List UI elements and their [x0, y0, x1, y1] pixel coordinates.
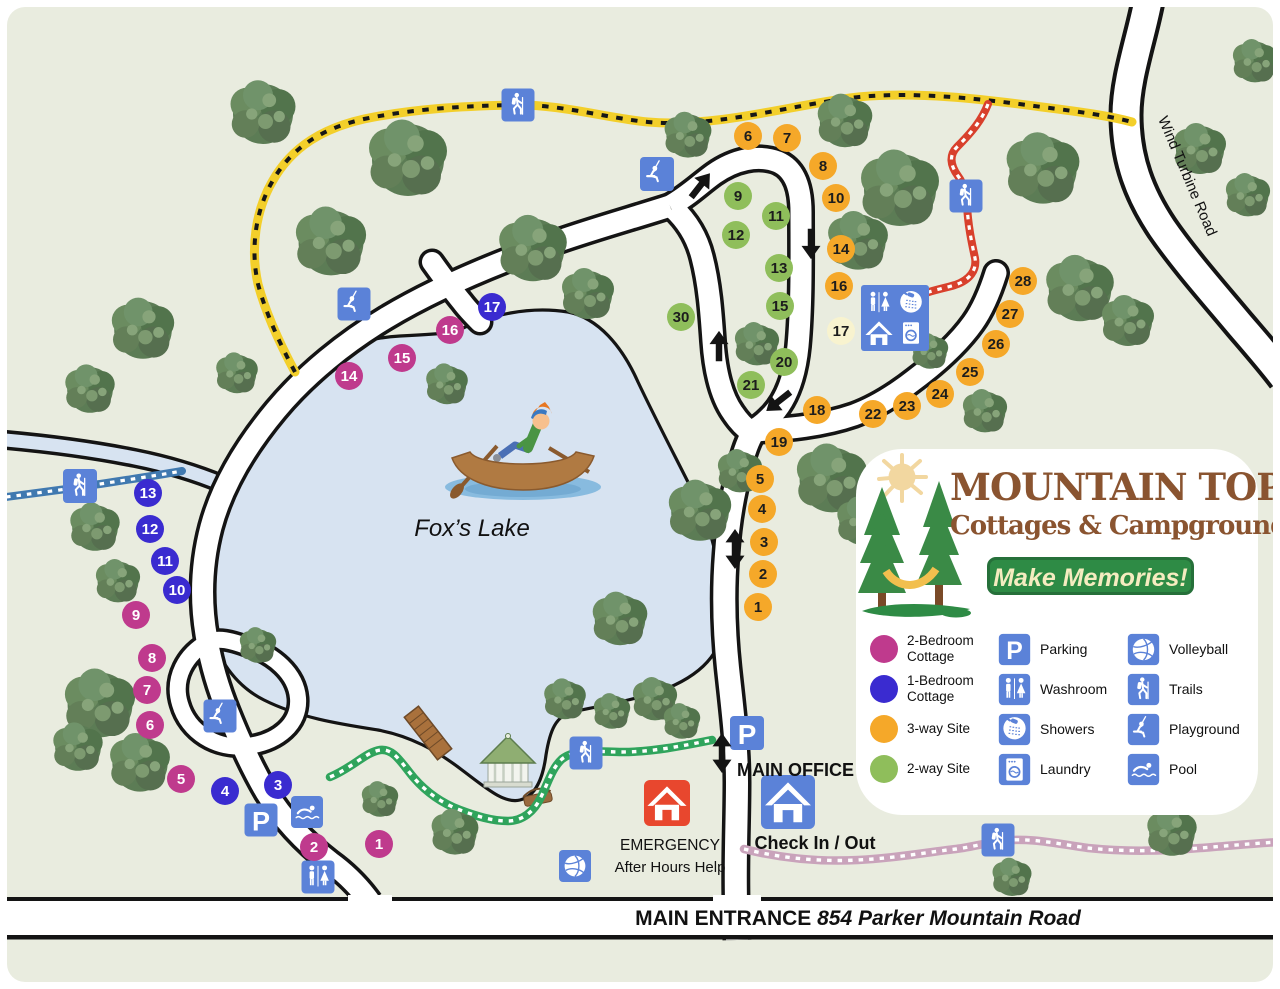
site-marker-site3-19: 19 [765, 428, 793, 456]
check-in-house-icon [761, 775, 815, 829]
legend-item-washroom: Washroom [998, 669, 1107, 709]
svg-text:1: 1 [754, 599, 762, 616]
site-marker-site3-16: 16 [825, 272, 853, 300]
svg-text:1: 1 [375, 836, 383, 853]
site-marker-cottage1-11: 11 [151, 547, 179, 575]
site-marker-cottage2-9: 9 [122, 601, 150, 629]
map-playground-icon [204, 700, 237, 733]
tree-icon [231, 80, 296, 144]
site-marker-cottage2-15: 15 [388, 344, 416, 372]
site-marker-site3-22: 22 [859, 400, 887, 428]
svg-text:7: 7 [143, 682, 151, 699]
tree-icon [96, 559, 140, 602]
svg-text:27: 27 [1002, 306, 1019, 323]
svg-text:P: P [1006, 637, 1023, 664]
site-marker-site3-24: 24 [926, 380, 954, 408]
logo-title: MOUNTAIN TOP [950, 465, 1250, 509]
site-marker-sitePale-17: 17 [827, 317, 855, 345]
tree-icon [818, 94, 873, 148]
washroom-label: Washroom [1040, 681, 1107, 697]
tree-icon [216, 352, 258, 393]
site-marker-site3-14: 14 [827, 235, 855, 263]
tree-icon [65, 364, 114, 412]
tree-icon [1233, 39, 1273, 82]
volleyball-label: Volleyball [1169, 641, 1228, 657]
map-playground-icon [338, 288, 371, 321]
tree-icon [110, 733, 170, 792]
legend-item-site3: 3-way Site [870, 709, 970, 749]
site-marker-site3-18: 18 [803, 396, 831, 424]
cottage1-dot [870, 675, 898, 703]
tree-icon [562, 268, 614, 319]
svg-text:6: 6 [744, 128, 752, 145]
site2-dot [870, 755, 898, 783]
site-marker-cottage2-1: 1 [365, 830, 393, 858]
svg-text:22: 22 [865, 406, 882, 423]
site-marker-site3-26: 26 [982, 330, 1010, 358]
site-marker-cottage2-8: 8 [138, 644, 166, 672]
lake-label: Fox’s Lake [414, 515, 530, 542]
map-trails-icon [950, 180, 983, 213]
svg-text:19: 19 [771, 434, 788, 451]
site3-label: 3-way Site [907, 721, 970, 737]
svg-text:P: P [252, 807, 270, 837]
trails-icon [1127, 673, 1160, 706]
legend-item-site2: 2-way Site [870, 749, 970, 789]
svg-text:30: 30 [673, 309, 690, 326]
map-washroom-icon [302, 861, 335, 894]
legend-item-cottage1: 1-BedroomCottage [870, 669, 974, 709]
legend-item-volleyball: Volleyball [1127, 629, 1228, 669]
svg-text:12: 12 [142, 521, 159, 538]
site-marker-cottage1-10: 10 [163, 576, 191, 604]
site-marker-site2-30: 30 [667, 303, 695, 331]
tree-icon [1102, 295, 1154, 346]
map-parking-icon: P [245, 804, 278, 837]
legend-item-cottage2: 2-BedroomCottage [870, 629, 974, 669]
site-marker-site3-10: 10 [822, 184, 850, 212]
svg-text:20: 20 [776, 354, 793, 371]
tree-icon [499, 215, 567, 281]
site-marker-site3-5: 5 [746, 465, 774, 493]
legend-card: MOUNTAIN TOP Cottages & Campground Make … [856, 449, 1258, 815]
svg-text:3: 3 [274, 777, 282, 794]
svg-text:12: 12 [728, 227, 745, 244]
tree-icon [664, 703, 700, 739]
site3-dot [870, 715, 898, 743]
map-trails-icon [502, 89, 535, 122]
washroom-icon [998, 673, 1031, 706]
svg-text:17: 17 [833, 323, 850, 340]
site-marker-site2-21: 21 [737, 371, 765, 399]
svg-text:13: 13 [771, 260, 788, 277]
svg-text:3: 3 [760, 534, 768, 551]
map-trails-icon [63, 469, 97, 503]
pool-icon [1127, 753, 1160, 786]
svg-text:2: 2 [310, 839, 318, 856]
svg-text:7: 7 [783, 130, 791, 147]
svg-text:21: 21 [743, 377, 760, 394]
parking-label: Parking [1040, 641, 1087, 657]
parking-icon: P [998, 633, 1031, 666]
svg-text:5: 5 [756, 471, 764, 488]
site-marker-site2-12: 12 [722, 221, 750, 249]
map-volleyball-icon [559, 850, 591, 882]
tree-icon [1226, 173, 1270, 216]
tree-icon [112, 298, 174, 359]
legend-item-parking: PParking [998, 629, 1087, 669]
svg-text:8: 8 [148, 650, 156, 667]
site-marker-site3-28: 28 [1009, 267, 1037, 295]
site-marker-site2-11: 11 [762, 202, 790, 230]
shower-label: Showers [1040, 721, 1094, 737]
svg-text:10: 10 [169, 582, 186, 599]
svg-text:11: 11 [768, 208, 784, 225]
site-marker-cottage2-16: 16 [436, 316, 464, 344]
main-entrance-road: MAIN ENTRANCE 854 Parker Mountain Road [7, 895, 1273, 940]
svg-text:17: 17 [484, 299, 501, 316]
svg-text:15: 15 [772, 298, 789, 315]
site-marker-cottage1-12: 12 [136, 515, 164, 543]
site-marker-site3-2: 2 [749, 560, 777, 588]
site-marker-cottage2-6: 6 [136, 711, 164, 739]
tree-icon [296, 207, 366, 276]
tree-icon [70, 502, 119, 550]
playground-icon [1127, 713, 1160, 746]
svg-text:16: 16 [831, 278, 848, 295]
tree-icon [362, 781, 398, 817]
main-office-label: MAIN OFFICE [737, 760, 854, 780]
svg-text:P: P [738, 719, 757, 750]
svg-text:28: 28 [1015, 273, 1032, 290]
svg-text:10: 10 [828, 190, 845, 207]
check-in-out-label: Check In / Out [754, 833, 875, 853]
legend-item-shower: Showers [998, 709, 1094, 749]
svg-text:13: 13 [140, 485, 157, 502]
site-marker-site2-9: 9 [724, 182, 752, 210]
site-marker-cottage1-3: 3 [264, 771, 292, 799]
site-marker-site3-8: 8 [809, 152, 837, 180]
site-marker-site2-20: 20 [770, 348, 798, 376]
site-marker-cottage2-7: 7 [133, 676, 161, 704]
svg-text:4: 4 [758, 501, 767, 518]
tree-icon [1007, 132, 1080, 203]
svg-text:23: 23 [899, 398, 916, 415]
cottage1-label: 1-BedroomCottage [907, 673, 974, 705]
cottage2-dot [870, 635, 898, 663]
map-playground-icon [640, 157, 674, 191]
after-hours-label: After Hours Help [615, 859, 726, 876]
svg-text:16: 16 [442, 322, 459, 339]
playground-label: Playground [1169, 721, 1240, 737]
emergency-label: EMERGENCY [620, 837, 720, 854]
svg-text:4: 4 [221, 783, 230, 800]
site-marker-cottage2-14: 14 [335, 362, 363, 390]
map-trails-icon [570, 737, 603, 770]
svg-text:9: 9 [132, 607, 140, 624]
trails-label: Trails [1169, 681, 1203, 697]
map-pool-icon [291, 796, 323, 828]
site-marker-site2-15: 15 [766, 292, 794, 320]
pool-label: Pool [1169, 761, 1197, 777]
tree-icon [861, 150, 939, 227]
site-marker-site3-25: 25 [956, 358, 984, 386]
svg-text:18: 18 [809, 402, 826, 419]
site-marker-site3-7: 7 [773, 124, 801, 152]
site-marker-site3-6: 6 [734, 122, 762, 150]
site-marker-cottage1-13: 13 [134, 479, 162, 507]
svg-text:5: 5 [177, 771, 185, 788]
legend-item-trails: Trails [1127, 669, 1203, 709]
svg-text:15: 15 [394, 350, 411, 367]
building-laundry-icon [903, 322, 919, 344]
site-marker-cottage1-17: 17 [478, 293, 506, 321]
site-marker-cottage1-4: 4 [211, 777, 239, 805]
laundry-icon [998, 753, 1031, 786]
volleyball-icon [1127, 633, 1160, 666]
svg-text:24: 24 [932, 386, 949, 403]
legend-item-laundry: Laundry [998, 749, 1091, 789]
tree-icon [369, 120, 447, 197]
map-trails-icon [982, 824, 1015, 857]
logo-tagline: Make Memories! [987, 557, 1194, 595]
campground-map: MAIN ENTRANCE 854 Parker Mountain Road P… [7, 7, 1273, 982]
tree-icon [963, 389, 1007, 432]
svg-text:25: 25 [962, 364, 979, 381]
tree-icon [993, 858, 1032, 896]
shower-icon [998, 713, 1031, 746]
site-marker-site3-27: 27 [996, 300, 1024, 328]
site-marker-cottage2-2: 2 [300, 833, 328, 861]
site-marker-site3-3: 3 [750, 528, 778, 556]
svg-text:8: 8 [819, 158, 827, 175]
site-marker-site2-13: 13 [765, 254, 793, 282]
svg-text:2: 2 [759, 566, 767, 583]
svg-text:6: 6 [146, 717, 154, 734]
svg-text:14: 14 [833, 241, 850, 258]
laundry-label: Laundry [1040, 761, 1091, 777]
site-marker-cottage2-5: 5 [167, 765, 195, 793]
cottage2-label: 2-BedroomCottage [907, 633, 974, 665]
main-entrance-label: MAIN ENTRANCE 854 Parker Mountain Road [635, 907, 1082, 930]
svg-text:9: 9 [734, 188, 742, 205]
site-marker-site3-1: 1 [744, 593, 772, 621]
logo-subtitle: Cottages & Campground [950, 511, 1250, 541]
emergency-house-icon [644, 780, 690, 826]
svg-text:11: 11 [157, 553, 173, 570]
legend-item-playground: Playground [1127, 709, 1240, 749]
legend-item-pool: Pool [1127, 749, 1197, 789]
site2-label: 2-way Site [907, 761, 970, 777]
site-marker-site3-4: 4 [748, 495, 776, 523]
svg-text:26: 26 [988, 336, 1005, 353]
svg-text:14: 14 [341, 368, 358, 385]
map-parking-icon: P [730, 716, 764, 750]
site-marker-site3-23: 23 [893, 392, 921, 420]
